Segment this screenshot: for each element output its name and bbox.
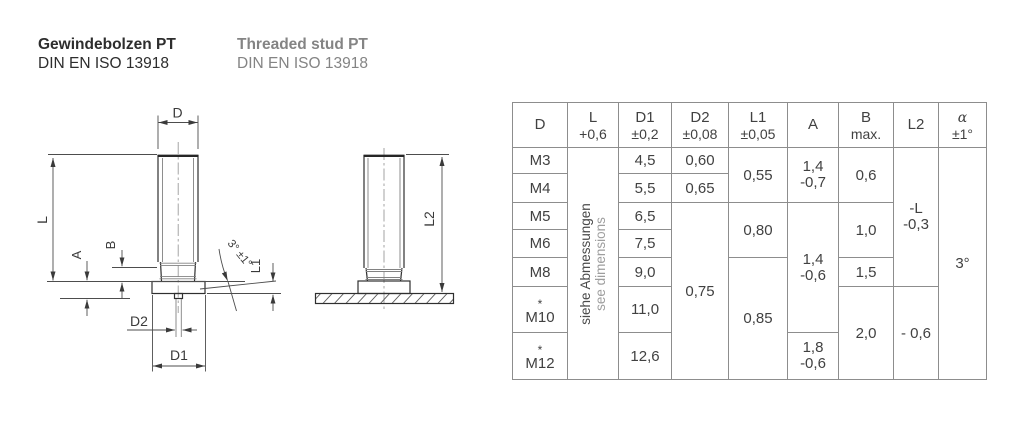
cell-d-m4: M4 <box>513 174 568 203</box>
cell-a-m3-m4: 1,4-0,7 <box>788 148 839 203</box>
dimension-d2: D2 <box>127 313 197 330</box>
cell-d-m3: M3 <box>513 148 568 174</box>
footnote-asterisk: * <box>513 340 567 355</box>
cell-d1-m8: 9,0 <box>619 258 672 287</box>
cell-d1-m4: 5,5 <box>619 174 672 203</box>
cell-l2-m3-m8: -L-0,3 <box>894 148 939 287</box>
cell-d2-m5-m12: 0,75 <box>672 203 729 380</box>
dimension-l2: L2 <box>406 155 449 293</box>
col-header-d: D <box>513 103 568 148</box>
cell-d-m5: M5 <box>513 203 568 230</box>
col-header-a: A <box>788 103 839 148</box>
cell-b-m5-m6: 1,0 <box>839 203 894 258</box>
label-d2: D2 <box>130 313 148 329</box>
label-l2: L2 <box>421 211 437 227</box>
cell-d-m10: * M10 <box>513 287 568 333</box>
cell-d-m6: M6 <box>513 230 568 258</box>
cell-b-m10-m12: 2,0 <box>839 287 894 380</box>
label-a: A <box>69 250 84 259</box>
col-header-l2: L2 <box>894 103 939 148</box>
cell-l1-m3-m4: 0,55 <box>729 148 788 203</box>
cell-a-m12: 1,8-0,6 <box>788 333 839 380</box>
dimension-b: B <box>103 241 157 299</box>
col-header-b: Bmax. <box>839 103 894 148</box>
col-header-l: L+0,6 <box>568 103 619 148</box>
cell-d1-m3: 4,5 <box>619 148 672 174</box>
cell-d2-m3: 0,60 <box>672 148 729 174</box>
stud-welded-view <box>310 148 460 311</box>
l-note-english: see dimensions <box>593 203 608 325</box>
dimension-angle: 3° ±1° <box>200 238 276 311</box>
cell-a-m5-m10: 1,4-0,6 <box>788 203 839 333</box>
cell-d-m12: * M12 <box>513 333 568 380</box>
dimension-d1: D1 <box>153 295 206 372</box>
cell-l-note: siehe Abmessungen see dimensions <box>568 148 619 380</box>
table-row-m3: M3 siehe Abmessungen see dimensions 4,5 … <box>513 148 987 174</box>
dimension-a: A <box>60 250 130 316</box>
cell-d2-m4: 0,65 <box>672 174 729 203</box>
label-d: D <box>172 105 182 121</box>
col-header-d2: D2±0,08 <box>672 103 729 148</box>
cell-d1-m10: 11,0 <box>619 287 672 333</box>
dimension-table: D L+0,6 D1±0,2 D2±0,08 L1±0,05 A Bmax. L… <box>512 102 987 380</box>
col-header-d1: D1±0,2 <box>619 103 672 148</box>
stud-front-view <box>152 142 205 337</box>
label-b: B <box>103 241 118 250</box>
dimension-l: L <box>34 155 245 282</box>
cell-l1-m8-m12: 0,85 <box>729 258 788 380</box>
cell-d1-m6: 7,5 <box>619 230 672 258</box>
cell-d-m8: M8 <box>513 258 568 287</box>
cell-l1-m5-m6: 0,80 <box>729 203 788 258</box>
cell-d1-m12: 12,6 <box>619 333 672 380</box>
col-header-alpha: α±1° <box>939 103 987 148</box>
cell-d1-m5: 6,5 <box>619 203 672 230</box>
label-d1: D1 <box>170 347 188 363</box>
cell-l2-m10-m12: - 0,6 <box>894 287 939 380</box>
cell-b-m8: 1,5 <box>839 258 894 287</box>
cell-b-m3-m4: 0,6 <box>839 148 894 203</box>
label-l1: L1 <box>248 259 263 273</box>
l-note-german: siehe Abmessungen <box>578 203 593 325</box>
header-row: D L+0,6 D1±0,2 D2±0,08 L1±0,05 A Bmax. L… <box>513 103 987 148</box>
label-l: L <box>34 216 50 224</box>
cell-alpha: 3° <box>939 148 987 380</box>
footnote-asterisk: * <box>513 294 567 309</box>
col-header-l1: L1±0,05 <box>729 103 788 148</box>
